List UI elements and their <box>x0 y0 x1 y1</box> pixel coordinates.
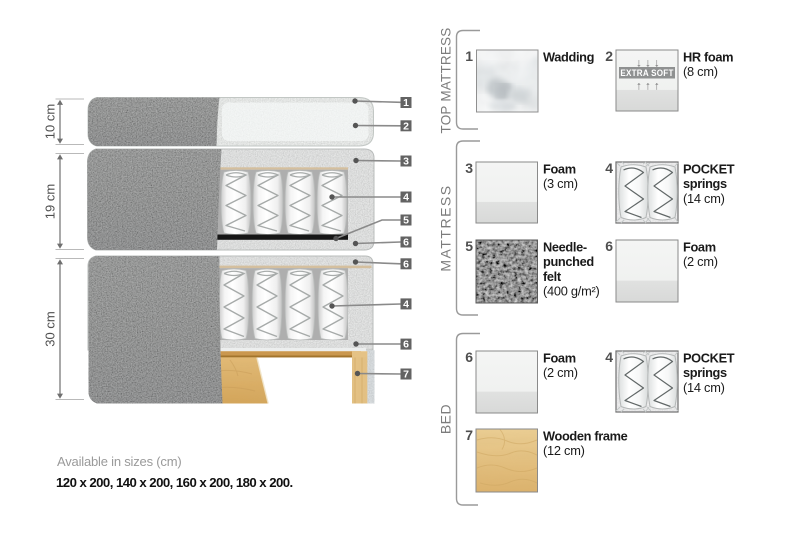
svg-text:felt: felt <box>543 269 562 284</box>
svg-text:120 x 200, 140 x 200, 160 x 20: 120 x 200, 140 x 200, 160 x 200, 180 x 2… <box>56 475 293 490</box>
svg-text:(3 cm): (3 cm) <box>543 176 578 191</box>
svg-text:Foam: Foam <box>543 351 576 366</box>
svg-text:punched: punched <box>543 254 594 269</box>
svg-text:6: 6 <box>605 238 613 254</box>
svg-text:4: 4 <box>403 298 409 310</box>
svg-text:3: 3 <box>465 160 473 176</box>
svg-text:2: 2 <box>403 120 409 132</box>
svg-text:6: 6 <box>403 237 409 249</box>
svg-text:7: 7 <box>465 427 473 443</box>
svg-text:6: 6 <box>465 349 473 365</box>
svg-text:3: 3 <box>403 156 409 168</box>
svg-text:Available in sizes (cm): Available in sizes (cm) <box>57 454 181 469</box>
svg-text:4: 4 <box>403 192 409 204</box>
svg-text:6: 6 <box>403 258 409 270</box>
svg-text:(14 cm): (14 cm) <box>683 191 725 206</box>
svg-text:HR foam: HR foam <box>683 50 733 65</box>
svg-text:30 cm: 30 cm <box>43 311 58 346</box>
svg-text:BED: BED <box>438 404 454 434</box>
svg-text:(400 g/m²): (400 g/m²) <box>543 284 600 299</box>
svg-text:4: 4 <box>605 160 613 176</box>
svg-text:springs: springs <box>683 365 727 380</box>
svg-text:↑ ↑ ↑: ↑ ↑ ↑ <box>636 81 660 93</box>
svg-text:1: 1 <box>465 48 473 64</box>
svg-text:19 cm: 19 cm <box>43 184 58 219</box>
svg-text:Wooden frame: Wooden frame <box>543 429 628 444</box>
svg-text:7: 7 <box>403 369 409 381</box>
svg-text:POCKET: POCKET <box>683 162 735 177</box>
svg-text:2: 2 <box>605 48 613 64</box>
svg-text:6: 6 <box>403 339 409 351</box>
svg-text:(14 cm): (14 cm) <box>683 380 725 395</box>
svg-text:4: 4 <box>605 349 613 365</box>
svg-text:TOP MATTRESS: TOP MATTRESS <box>439 28 454 134</box>
svg-text:EXTRA SOFT: EXTRA SOFT <box>620 68 674 79</box>
svg-text:(2 cm): (2 cm) <box>683 254 718 269</box>
svg-text:(2 cm): (2 cm) <box>543 365 578 380</box>
svg-text:Wadding: Wadding <box>543 50 594 65</box>
svg-text:(12 cm): (12 cm) <box>543 443 585 458</box>
svg-text:springs: springs <box>683 176 727 191</box>
svg-text:Foam: Foam <box>543 162 576 177</box>
svg-text:5: 5 <box>465 238 473 254</box>
svg-text:1: 1 <box>403 97 409 109</box>
svg-text:POCKET: POCKET <box>683 351 735 366</box>
svg-text:(8 cm): (8 cm) <box>683 64 718 79</box>
svg-text:5: 5 <box>403 215 409 227</box>
svg-text:Needle-: Needle- <box>543 240 587 255</box>
svg-text:Foam: Foam <box>683 240 716 255</box>
svg-text:10 cm: 10 cm <box>43 104 58 139</box>
svg-text:MATTRESS: MATTRESS <box>438 184 454 271</box>
